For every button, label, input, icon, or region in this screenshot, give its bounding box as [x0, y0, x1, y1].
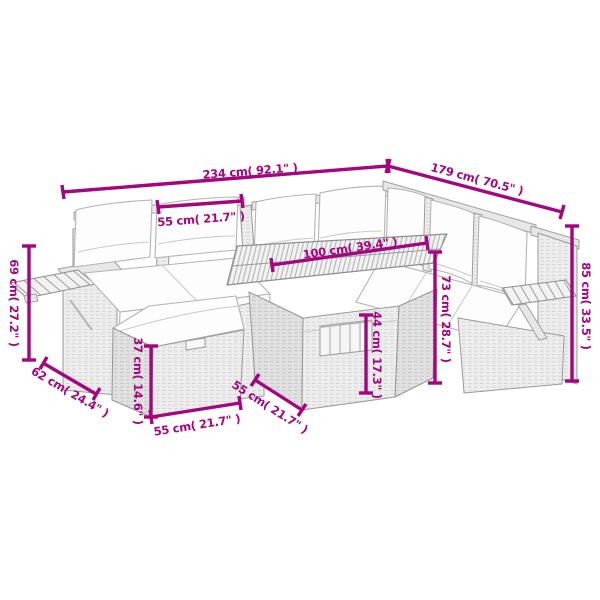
dimension-label-backrest-height: 85 cm( 33.5" ) — [579, 262, 593, 350]
left-shelf-bracket — [24, 294, 38, 303]
furniture-dimension-diagram: 234 cm( 92.1" ) 179 cm( 70.5" ) 55 cm( 2… — [0, 0, 600, 600]
back-cushion — [74, 200, 152, 267]
dimension-label-table-height: 73 cm( 28.7" ) — [439, 275, 453, 363]
dimension-label-table-clearance-height: 44 cm( 17.3" ) — [370, 311, 384, 399]
table-base-recess — [320, 320, 372, 356]
dimension-label-armrest-height: 69 cm( 27.2" ) — [7, 259, 21, 347]
dimension-label-ottoman-height: 37 cm( 14.6" ) — [131, 337, 145, 425]
dimension-diagram-canvas: 234 cm( 92.1" ) 179 cm( 70.5" ) 55 cm( 2… — [0, 0, 600, 600]
